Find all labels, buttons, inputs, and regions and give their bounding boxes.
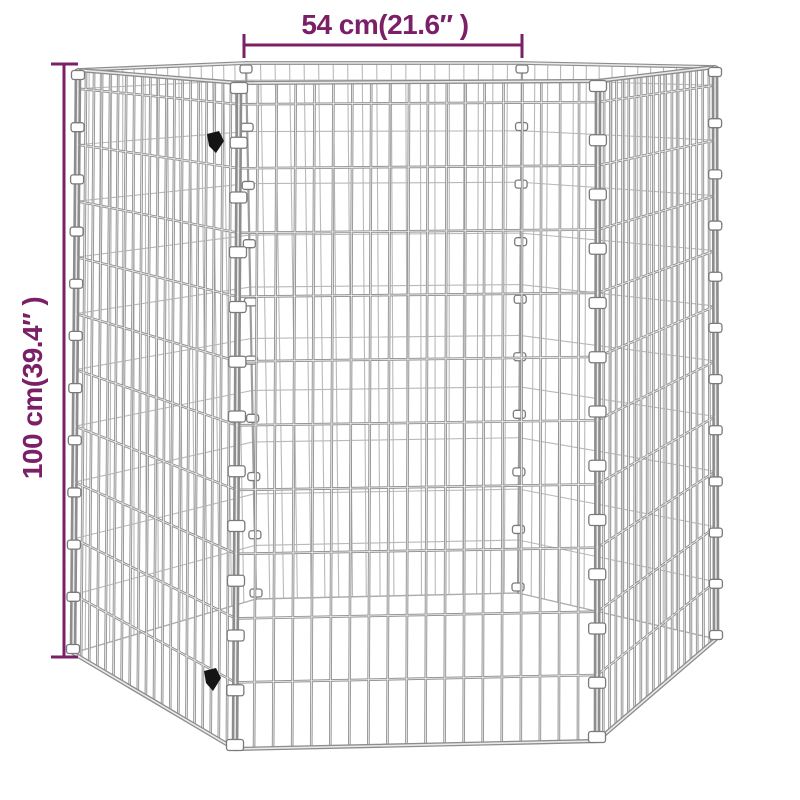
wire	[261, 63, 270, 599]
panel-connector-clip	[589, 189, 606, 200]
panel-connector-clip	[589, 732, 606, 743]
panel-connector-clip	[589, 243, 606, 254]
panel-connector-clip	[71, 175, 84, 184]
wire	[138, 75, 143, 691]
panel-connector-clip	[242, 181, 254, 189]
panel-connector-clip	[227, 630, 244, 641]
wire	[235, 741, 597, 749]
panel-connector-clip	[70, 279, 83, 288]
panel-connector-clip	[227, 740, 244, 751]
wire	[146, 76, 151, 696]
panel-connector-clip	[70, 227, 83, 236]
panel-connector-clip	[589, 569, 606, 580]
wire	[76, 287, 250, 314]
panel-connector-clip	[514, 295, 526, 303]
wire	[521, 131, 715, 140]
wire	[519, 438, 716, 472]
panel-connector-clip	[589, 135, 606, 146]
wire	[250, 285, 520, 288]
wire	[377, 63, 380, 596]
panel-connector-clip	[589, 406, 606, 417]
wire	[650, 66, 651, 624]
wire	[420, 63, 421, 595]
wire	[544, 64, 547, 600]
panel-connector-clip	[228, 466, 245, 477]
cage-illustration: 54 cm(21.6″ ) 100 cm(39.4″ )	[0, 0, 800, 800]
wire	[114, 73, 119, 677]
panel-connector-clip	[68, 488, 81, 497]
panel-connector-clip	[230, 247, 247, 258]
panel-connector-clip	[589, 677, 606, 688]
panel-connector-clip	[240, 65, 252, 73]
wire	[238, 293, 598, 297]
panel-connector-clip	[230, 137, 247, 148]
wire	[362, 63, 366, 596]
wire	[690, 70, 691, 661]
panel-connector-clip	[589, 298, 606, 309]
panel-connector-clip	[229, 302, 246, 313]
wire	[504, 63, 507, 593]
wire	[304, 63, 311, 598]
back-panels	[73, 63, 716, 653]
panel-connector-clip	[512, 525, 524, 533]
panel-connector-clip	[231, 83, 248, 94]
panel-connector-clip	[248, 473, 260, 481]
panel-connector-clip	[709, 170, 722, 179]
panel-connector-clip	[67, 592, 80, 601]
wire	[186, 79, 190, 720]
panel-connector-clip	[590, 81, 607, 92]
panel-connector-clip	[67, 540, 80, 549]
wire	[531, 63, 535, 596]
wire	[477, 63, 479, 594]
panel-connector-clip	[710, 631, 723, 640]
panel-connector-clip	[230, 192, 247, 203]
width-dimension-label: 54 cm(21.6″ )	[301, 9, 468, 40]
wire	[713, 67, 714, 639]
wire	[715, 67, 716, 639]
panel-connector-clip	[513, 468, 525, 476]
panel-connector-clip	[69, 331, 82, 340]
panel-connector-clip	[589, 460, 606, 471]
panel-connector-clip	[72, 71, 85, 80]
wire	[170, 78, 174, 711]
panel-connector-clip	[241, 123, 253, 131]
panel-connector-clip	[67, 645, 80, 654]
wire	[622, 78, 623, 719]
wire	[571, 64, 574, 605]
panel-connector-clip	[516, 65, 528, 73]
wire	[76, 235, 249, 257]
panel-connector-clip	[709, 68, 722, 77]
wire	[520, 285, 715, 307]
wire	[490, 63, 493, 594]
top-back-rail	[78, 63, 715, 70]
wire	[211, 81, 215, 735]
cage-wireframe	[67, 63, 723, 751]
wire	[251, 335, 520, 338]
wire	[521, 182, 715, 195]
panel-connector-clip	[71, 123, 84, 132]
wire	[162, 77, 166, 706]
panel-connector-clip	[228, 521, 245, 532]
wire	[717, 67, 718, 639]
panel-connector-clip	[68, 436, 81, 445]
panel-connector-clip	[709, 528, 722, 537]
wire	[248, 182, 521, 183]
wire	[584, 64, 586, 608]
wire	[637, 65, 638, 620]
wire	[247, 131, 521, 132]
panel-connector-clip	[515, 238, 527, 246]
width-dimension: 54 cm(21.6″ )	[244, 9, 522, 58]
wire	[78, 63, 246, 70]
panel-connector-clip	[69, 384, 82, 393]
panel-connector-clip	[589, 623, 606, 634]
product-dimension-image: 54 cm(21.6″ ) 100 cm(39.4″ )	[0, 0, 800, 800]
panel-connector-clip	[709, 119, 722, 128]
wire	[237, 357, 597, 362]
height-dimension-label: 100 cm(39.4″ )	[17, 297, 48, 479]
wire	[219, 82, 223, 740]
panel-connector-clip	[228, 575, 245, 586]
wire	[520, 387, 716, 417]
wire	[237, 484, 598, 490]
panel-connector-clip	[229, 356, 246, 367]
panel-connector-clip	[709, 477, 722, 486]
wire	[235, 675, 597, 682]
panel-connector-clip	[589, 515, 606, 526]
wire	[237, 420, 598, 425]
wire	[252, 387, 519, 391]
wire	[236, 612, 597, 619]
panel-connector-clip	[709, 579, 722, 588]
panel-connector-clip	[709, 375, 722, 384]
wire	[203, 80, 207, 729]
wire	[521, 233, 716, 250]
panel-connector-clip	[513, 410, 525, 418]
panel-connector-clip	[709, 272, 722, 281]
wire	[236, 548, 597, 554]
panel-connector-clip	[709, 221, 722, 230]
height-dimension: 100 cm(39.4″ )	[17, 64, 78, 657]
wire	[319, 63, 325, 597]
panel-connector-clip	[227, 685, 244, 696]
panel-connector-clip	[709, 426, 722, 435]
wire	[391, 63, 394, 596]
panel-connector-clip	[229, 411, 246, 422]
panel-connector-clip	[589, 352, 606, 363]
panel-connector-clip	[709, 323, 722, 332]
wire	[178, 78, 182, 715]
